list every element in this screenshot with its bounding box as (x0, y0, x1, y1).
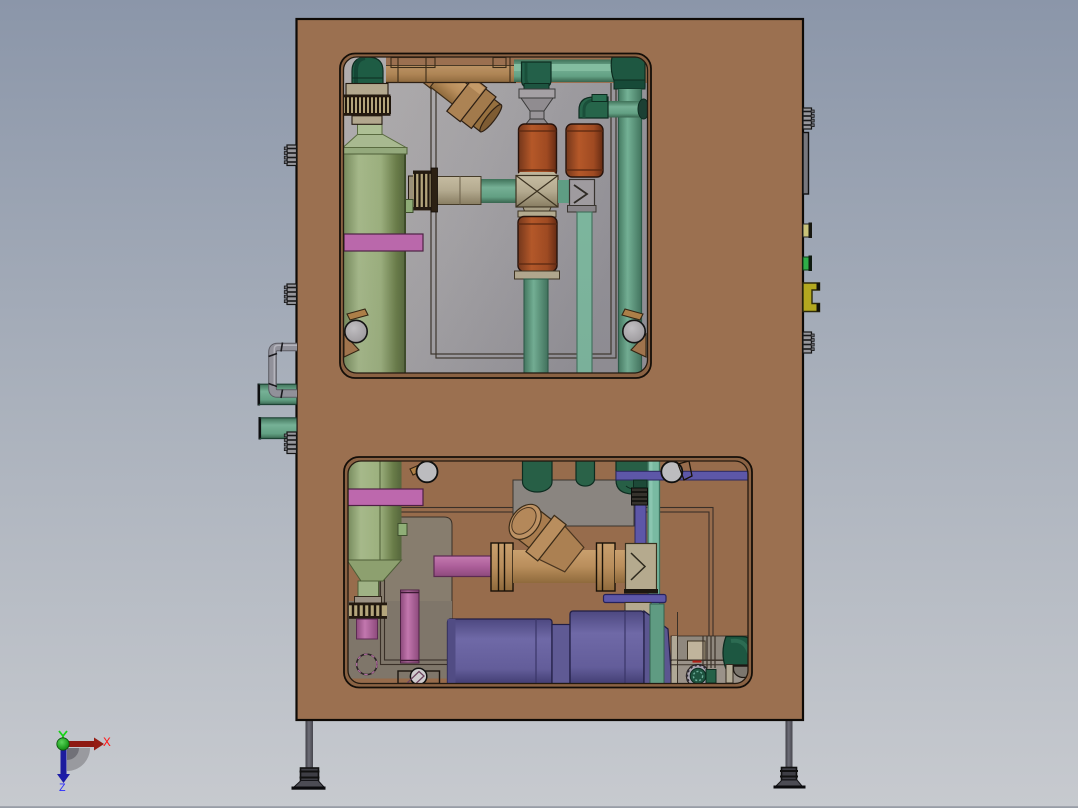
svg-text:X: X (103, 735, 111, 750)
svg-text:Z: Z (59, 783, 66, 795)
